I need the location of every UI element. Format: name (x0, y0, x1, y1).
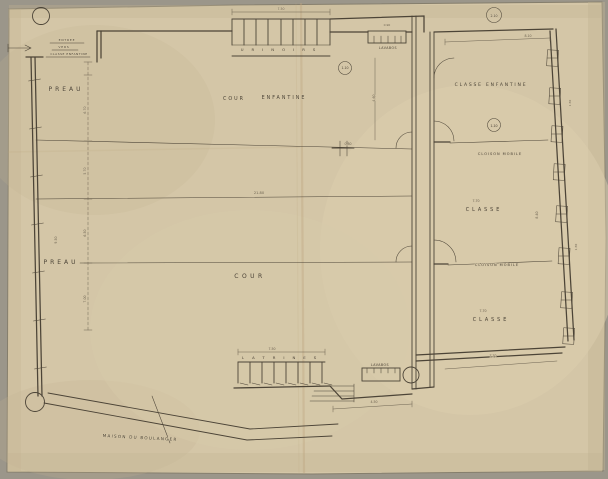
label-cloison-mobile-upper: CLOISON MOBILE (478, 152, 522, 156)
room-label-cour: COUR (234, 273, 265, 280)
room-label-preau-upper: PREAU (48, 86, 83, 93)
dim-classe-lower: 7.70 (479, 309, 486, 313)
dim-top-right: 8.10 (524, 34, 531, 38)
note-entree: ENTREE (59, 38, 76, 42)
label-lavabos-upper: LAVABOS (379, 46, 397, 50)
label-urinoirs: URINOIRS (241, 47, 324, 52)
dim-window-1: 1.50 (568, 100, 572, 107)
room-label-enfantine-word: ENFANTINE (262, 95, 307, 101)
dim-classe-depth: 8.40 (535, 211, 539, 218)
label-cloison-mobile-lower: CLOISON MOBILE (475, 263, 519, 267)
dim-preau-left: 9.50 (54, 236, 58, 243)
label-latrines: LATRINES (242, 355, 324, 360)
detail-bubble-stalls: 1.10 (341, 66, 348, 70)
dim-bottom-right: 7.70 (489, 354, 496, 358)
detail-bubble-right: 1.10 (490, 124, 497, 128)
dim-classe-middle: 7.70 (472, 199, 479, 203)
note-classe-enfantine: CLASSE ENFANTINE (50, 52, 87, 56)
dim-left-3: 6.50 (83, 229, 87, 236)
dim-court-vert: 4.60 (372, 94, 376, 101)
dim-window-2: 1.50 (574, 244, 578, 251)
detail-bubble-top-right: 2.10 (490, 14, 497, 18)
room-label-classe-lower: CLASSE (473, 317, 510, 323)
dim-left-4: 7.00 (83, 295, 87, 302)
dim-bottom-court: 4.50 (370, 400, 377, 404)
room-label-preau-lower: PREAU (43, 259, 78, 266)
dim-opening: 0.80 (344, 142, 351, 146)
scanned-plan-page: PREAUPREAUCOURENFANTINECOURCLASSE ENFANT… (0, 0, 608, 479)
note-vers: VERS (58, 45, 69, 49)
dim-urinoirs: 7.50 (277, 7, 284, 11)
floor-plan-scan: PREAUPREAUCOURENFANTINECOURCLASSE ENFANT… (0, 0, 608, 479)
dim-left-2: 5.70 (83, 167, 87, 174)
dim-left-1: 6.70 (83, 106, 87, 113)
room-label-cour-word: COUR (223, 96, 245, 102)
room-label-classe-middle: CLASSE (466, 207, 503, 213)
dim-latrines: 7.50 (268, 347, 275, 351)
label-lavabos-lower: LAVABOS (371, 363, 389, 367)
paper-sheet (0, 0, 608, 479)
room-label-classe-enfantine: CLASSE ENFANTINE (455, 82, 528, 88)
dim-total-width: 21.80 (254, 191, 265, 195)
dim-lavabos: 0.90 (384, 23, 391, 27)
